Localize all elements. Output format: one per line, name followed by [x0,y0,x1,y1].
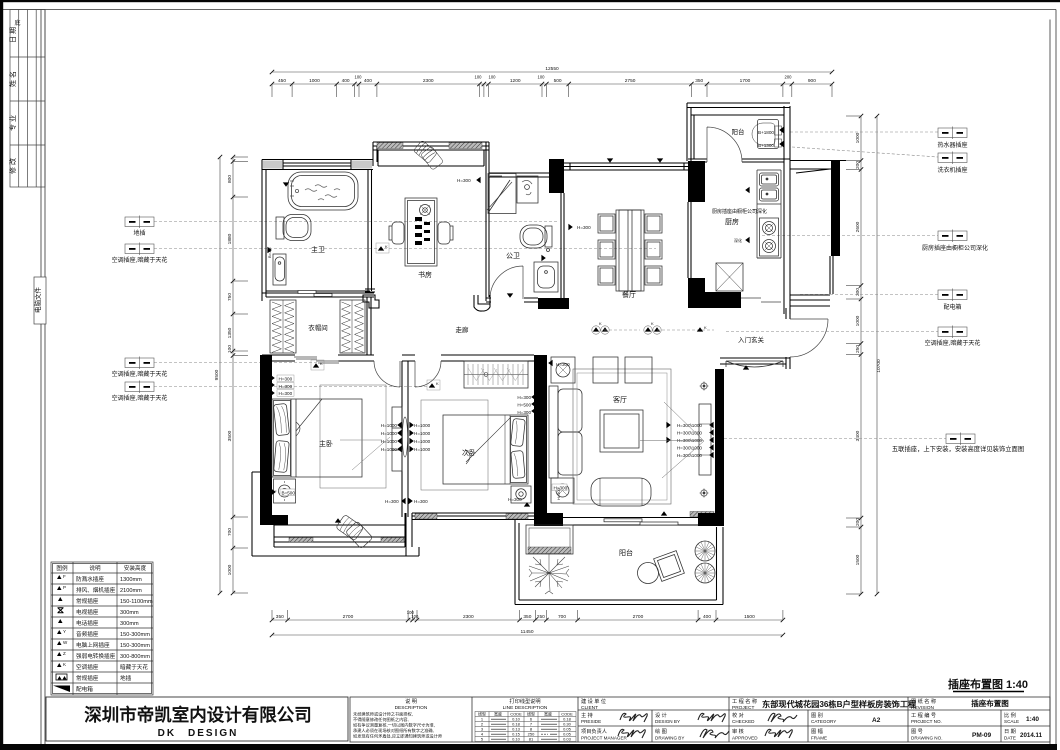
svg-text:图 号: 图 号 [911,728,923,735]
svg-text:厨房插座由橱柜公司深化: 厨房插座由橱柜公司深化 [922,244,988,252]
svg-text:400: 400 [364,78,372,84]
svg-text:图 幅: 图 幅 [811,727,823,735]
svg-text:深化: 深化 [734,237,742,243]
svg-text:厨房: 厨房 [725,217,739,226]
svg-text:H=300: H=300 [385,499,399,504]
svg-text:日 期: 日 期 [1004,728,1016,735]
svg-text:洗衣机插座: 洗衣机插座 [937,166,967,174]
svg-text:CATEGORY: CATEGORY [811,719,836,724]
svg-text:入门玄关: 入门玄关 [738,335,765,344]
svg-text:项目负责人: 项目负责人 [581,727,607,735]
svg-text:1:40: 1:40 [1026,716,1039,723]
svg-text:1300mm: 1300mm [120,577,142,583]
svg-text:K: K [651,321,654,326]
svg-text:0.03: 0.03 [563,737,572,742]
svg-text:东部现代城花园36栋B户型样板房装饰工程: 东部现代城花园36栋B户型样板房装饰工程 [762,699,917,709]
svg-text:DRAWING NO.: DRAWING NO. [911,736,942,741]
svg-text:H=300: H=300 [508,497,522,502]
svg-text:说明: 说明 [89,564,101,572]
svg-text:K: K [385,244,388,249]
svg-text:B+1300: B+1300 [758,143,774,148]
svg-text:H=300: H=300 [457,178,471,183]
svg-text:100: 100 [489,75,497,80]
svg-text:2600: 2600 [855,221,861,232]
svg-text:LINE DESCRIPTION: LINE DESCRIPTION [503,705,548,711]
svg-text:地插: 地插 [133,229,145,237]
svg-text:空调插座,暗藏于天花: 空调插座,暗藏于天花 [112,394,168,402]
svg-text:次卧: 次卧 [462,448,476,457]
svg-text:H=300\1000: H=300\1000 [677,446,703,451]
svg-text:校 对: 校 对 [732,711,744,719]
svg-text:250: 250 [537,614,545,620]
svg-text:100: 100 [227,345,233,353]
svg-text:1500: 1500 [744,614,755,620]
svg-text:REVISION: REVISION [911,705,934,711]
svg-text:插座布置图: 插座布置图 [971,698,1009,708]
svg-text:2300: 2300 [423,78,434,84]
svg-text:300mm: 300mm [120,621,139,627]
svg-text:2100mm: 2100mm [120,588,142,594]
svg-text:常规插座: 常规插座 [76,674,99,682]
svg-text:审 核: 审 核 [732,727,744,735]
svg-text:空调插座,暗藏于天花: 空调插座,暗藏于天花 [925,339,981,347]
svg-text:400: 400 [703,614,711,620]
svg-text:说 明: 说 明 [405,697,417,705]
svg-text:H=1000: H=1000 [381,439,398,444]
svg-text:A2: A2 [872,717,881,724]
svg-text:2700: 2700 [343,614,354,620]
svg-text:1880: 1880 [227,233,233,244]
svg-text:绘 图: 绘 图 [655,727,667,735]
svg-text:250: 250 [855,345,861,353]
svg-text:工 程 名 称: 工 程 名 称 [732,697,757,705]
svg-text:Z: Z [63,651,66,656]
svg-text:五联插座，上下安装，安装高度详见装饰立面图: 五联插座，上下安装，安装高度详见装饰立面图 [892,444,1024,453]
svg-text:B=1.5: B=1.5 [267,247,272,258]
svg-text:空调插座: 空调插座 [76,663,99,671]
svg-text:0.10: 0.10 [512,737,521,742]
svg-text:750: 750 [227,293,233,301]
svg-text:1350: 1350 [227,327,233,338]
svg-text:350: 350 [523,614,531,620]
svg-text:公卫: 公卫 [506,252,520,260]
svg-text:DRAWING BY: DRAWING BY [655,736,684,741]
svg-text:线型: 线型 [527,711,535,717]
svg-text:H=1000: H=1000 [381,431,398,436]
svg-text:10700: 10700 [876,359,882,373]
svg-text:K: K [704,325,707,330]
svg-text:主卧: 主卧 [319,439,333,448]
svg-text:防溅水插座: 防溅水插座 [76,575,104,583]
svg-text:100: 100 [411,614,419,619]
svg-text:1200: 1200 [510,78,521,84]
svg-text:配电箱: 配电箱 [76,685,93,693]
svg-text:厨房插座由橱柜公司深化: 厨房插座由橱柜公司深化 [712,208,767,215]
svg-text:电脑文件: 电脑文件 [33,287,42,314]
svg-text:H=300: H=300 [279,391,293,396]
svg-text:700: 700 [558,614,566,620]
svg-text:强弱电转换插座: 强弱电转换插座 [76,652,116,660]
svg-text:H=300\1000: H=300\1000 [677,431,703,436]
svg-text:200: 200 [855,161,861,169]
svg-text:DESIGN BY: DESIGN BY [655,719,680,724]
svg-text:500: 500 [554,78,562,84]
svg-text:900: 900 [808,78,816,84]
svg-text:客厅: 客厅 [613,395,627,404]
svg-text:9500: 9500 [214,369,220,380]
svg-text:图 别: 图 别 [811,711,823,719]
svg-text:200: 200 [785,75,793,80]
svg-text:配电箱: 配电箱 [943,303,961,311]
svg-text:350: 350 [276,614,284,620]
svg-text:150-300mm: 150-300mm [120,632,150,638]
svg-text:设 计: 设 计 [655,711,667,719]
svg-text:空调插座,暗藏于天花: 空调插座,暗藏于天花 [112,256,168,264]
svg-text:主 持: 主 持 [581,711,593,719]
svg-text:如发现有任何矛盾处,应立即通知建筑师或设计师: 如发现有任何矛盾处,应立即通知建筑师或设计师 [353,733,442,740]
svg-text:H=1000: H=1000 [414,447,431,452]
svg-text:B+1800: B+1800 [758,130,774,135]
svg-text:阳台: 阳台 [732,127,745,136]
svg-text:CHECKED: CHECKED [732,719,755,724]
svg-text:PROJECT: PROJECT [732,705,754,711]
svg-text:1500: 1500 [855,554,861,565]
svg-text:H=300: H=300 [279,377,293,382]
svg-text:100: 100 [355,75,363,80]
svg-text:H=1000: H=1000 [414,423,431,428]
svg-text:餐厅: 餐厅 [622,290,636,299]
svg-text:12550: 12550 [545,66,559,72]
svg-text:H=1000: H=1000 [381,423,398,428]
svg-text:SCALE: SCALE [1004,719,1019,724]
svg-text:H=500: H=500 [517,402,531,407]
svg-text:安装高度: 安装高度 [124,564,147,572]
svg-text:150-1100mm: 150-1100mm [120,599,153,605]
svg-text:H=300: H=300 [556,487,561,500]
svg-text:100: 100 [538,75,546,80]
svg-text:走廊: 走廊 [456,325,470,334]
svg-text:350: 350 [695,78,703,84]
svg-text:热水器插座: 热水器插座 [937,141,967,149]
svg-text:地插: 地插 [120,674,132,682]
svg-text:比 例: 比 例 [1004,711,1016,719]
svg-text:DESCRIPTION: DESCRIPTION [395,705,428,711]
svg-text:打印线型说明: 打印线型说明 [509,697,540,705]
svg-text:衣帽间: 衣帽间 [308,323,328,332]
svg-text:DATE: DATE [1004,736,1016,741]
svg-text:H=1000: H=1000 [414,431,431,436]
svg-text:Y: Y [63,629,66,634]
svg-text:1000: 1000 [855,315,861,326]
svg-text:200: 200 [855,518,861,526]
svg-text:2750: 2750 [625,78,636,84]
svg-text:空调插座,暗藏于天花: 空调插座,暗藏于天花 [112,370,168,378]
svg-text:H=300: H=300 [414,499,428,504]
svg-text:修 改: 修 改 [8,158,17,174]
svg-text:400: 400 [342,78,350,84]
svg-text:PM-09: PM-09 [972,732,992,739]
svg-text:专 业: 专 业 [8,115,17,131]
svg-text:K: K [63,662,66,667]
svg-text:书房: 书房 [418,270,432,279]
svg-text:H=300: H=300 [556,362,570,367]
svg-text:APPROVED: APPROVED [732,736,758,741]
svg-text:日 期: 日 期 [9,27,17,43]
svg-text:800: 800 [227,175,233,183]
svg-text:宽度: 宽度 [544,711,552,717]
svg-text:底: 底 [15,19,21,27]
svg-text:K: K [436,381,439,386]
svg-text:主卫: 主卫 [311,245,325,254]
svg-text:2014.11: 2014.11 [1020,732,1043,739]
svg-text:H=300: H=300 [279,384,293,389]
svg-text:K: K [599,321,602,326]
svg-text:音频插座: 音频插座 [76,630,99,638]
svg-text:100: 100 [475,75,483,80]
svg-text:700: 700 [227,528,233,536]
svg-text:K: K [320,361,323,366]
svg-text:图例: 图例 [56,564,68,572]
svg-text:图 纸 名 称: 图 纸 名 称 [911,697,936,705]
svg-text:插座布置图 1:40: 插座布置图 1:40 [948,677,1028,691]
svg-text:建 设 单 位: 建 设 单 位 [581,697,606,705]
svg-text:深圳市帝凯室内设计有限公司: 深圳市帝凯室内设计有限公司 [84,705,312,725]
svg-text:300-800mm: 300-800mm [120,654,150,660]
svg-text:1000: 1000 [309,78,320,84]
svg-text:1000: 1000 [227,564,233,575]
svg-text:H=1000: H=1000 [381,447,398,452]
svg-text:11450: 11450 [521,629,534,635]
svg-text:81: 81 [529,737,534,742]
svg-text:电话插座: 电话插座 [76,619,99,627]
svg-text:姓 名: 姓 名 [8,71,17,87]
svg-text:2700: 2700 [633,614,644,620]
svg-text:线型: 线型 [478,711,486,717]
svg-text:常规插座: 常规插座 [76,597,99,605]
svg-text:FRAME: FRAME [811,736,827,741]
svg-text:B=500: B=500 [282,491,296,496]
svg-text:工 程 编 号: 工 程 编 号 [911,711,936,719]
svg-text:暗藏于天花: 暗藏于天花 [120,663,148,671]
svg-text:1700: 1700 [740,78,751,84]
svg-text:H=300: H=300 [517,410,531,415]
svg-text:3500: 3500 [227,430,233,441]
svg-text:电视插座: 电视插座 [76,608,99,616]
svg-text:CLIENT: CLIENT [581,705,598,711]
svg-text:PROJECT NO.: PROJECT NO. [911,719,942,724]
svg-text:P: P [63,585,66,590]
svg-text:PRESIDE: PRESIDE [581,719,601,724]
svg-text:150-300mm: 150-300mm [120,643,150,649]
svg-text:DK DESIGN: DK DESIGN [158,728,239,739]
svg-text:450: 450 [278,78,286,84]
svg-text:H=1000: H=1000 [414,439,431,444]
svg-text:F: F [63,574,66,579]
svg-text:PROJECT MANAGER: PROJECT MANAGER [581,736,628,741]
svg-text:H=300: H=300 [577,225,591,230]
svg-text:排风、烟机插座: 排风、烟机插座 [76,586,116,594]
svg-text:3400: 3400 [855,430,861,441]
svg-text:阳台: 阳台 [619,548,633,557]
svg-text:1000: 1000 [855,132,861,143]
svg-text:宽度: 宽度 [494,711,502,717]
svg-text:H=300: H=300 [517,395,531,400]
svg-text:2300: 2300 [463,614,474,620]
svg-text:300mm: 300mm [120,610,139,616]
svg-text:电脑上网插座: 电脑上网插座 [76,641,110,649]
